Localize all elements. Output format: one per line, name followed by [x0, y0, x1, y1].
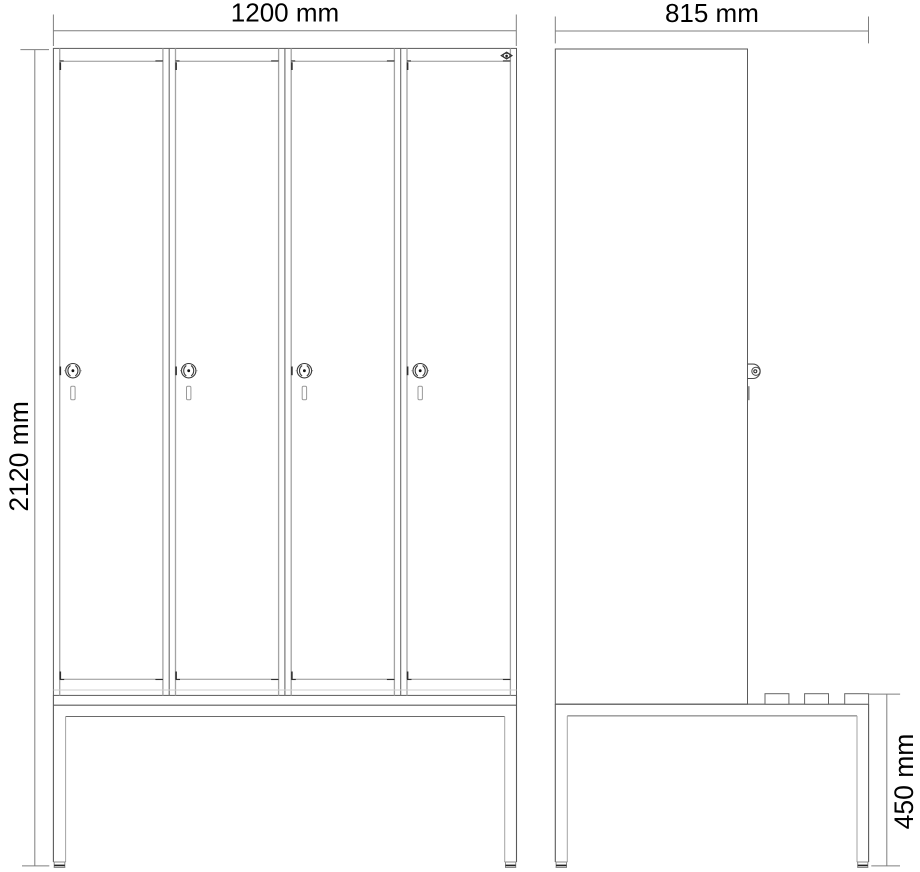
svg-text:450 mm: 450 mm — [889, 734, 919, 830]
svg-text:815 mm: 815 mm — [665, 0, 759, 28]
svg-text:2120 mm: 2120 mm — [4, 401, 34, 511]
svg-text:1200 mm: 1200 mm — [231, 0, 339, 28]
